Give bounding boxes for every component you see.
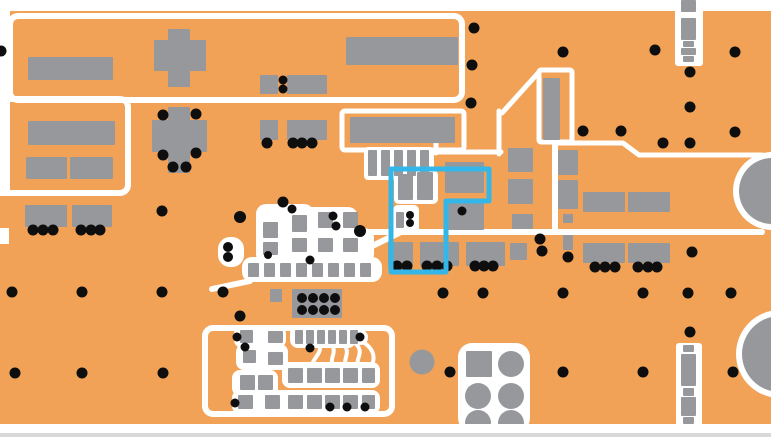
smd-pad xyxy=(447,203,484,230)
via xyxy=(354,225,366,237)
smd-pad xyxy=(683,417,694,424)
via xyxy=(488,261,499,272)
smd-pad xyxy=(240,330,253,343)
smd-pad xyxy=(628,243,670,263)
round-pad xyxy=(498,351,524,377)
via xyxy=(650,45,661,56)
pad-clearance xyxy=(218,237,244,267)
smd-pad xyxy=(466,351,492,377)
pcb-board-view xyxy=(0,0,771,437)
board-margin xyxy=(0,0,771,11)
via xyxy=(578,126,589,137)
smd-pad xyxy=(394,150,403,176)
via xyxy=(616,126,627,137)
via xyxy=(406,219,414,227)
via xyxy=(157,206,168,217)
via xyxy=(537,246,548,257)
via xyxy=(466,98,477,109)
smd-pad xyxy=(543,78,560,140)
via xyxy=(685,102,696,113)
via xyxy=(288,205,297,214)
smd-pad xyxy=(70,157,113,179)
via xyxy=(235,311,246,322)
smd-pad xyxy=(28,57,113,80)
via xyxy=(330,305,340,315)
via xyxy=(730,47,741,58)
via xyxy=(10,368,21,379)
smd-pad xyxy=(288,395,303,409)
via xyxy=(329,212,338,221)
smd-pad xyxy=(295,330,303,344)
smd-pad xyxy=(508,179,533,204)
via xyxy=(638,367,649,378)
via xyxy=(191,109,202,120)
smd-pad xyxy=(558,180,578,209)
via xyxy=(330,293,340,303)
via xyxy=(685,138,696,149)
via xyxy=(157,287,168,298)
smd-pad xyxy=(307,368,322,383)
via xyxy=(158,110,169,121)
via xyxy=(233,333,242,342)
smd-pad xyxy=(343,238,358,252)
via xyxy=(558,288,569,299)
via xyxy=(76,225,87,236)
smd-pad xyxy=(328,263,339,277)
via xyxy=(77,368,88,379)
via xyxy=(319,305,329,315)
smd-pad xyxy=(683,41,694,47)
pcb-canvas[interactable] xyxy=(0,0,771,437)
board-edge-line xyxy=(0,433,771,437)
via xyxy=(234,211,246,223)
via xyxy=(361,403,370,412)
via xyxy=(279,76,288,85)
via xyxy=(262,138,273,149)
via xyxy=(38,225,49,236)
smd-pad xyxy=(258,375,273,390)
smd-pad xyxy=(287,120,327,140)
smd-pad xyxy=(307,395,322,409)
via xyxy=(445,367,456,378)
via xyxy=(278,197,289,208)
smd-pad xyxy=(248,263,259,277)
smd-pad xyxy=(583,243,625,263)
smd-pad xyxy=(270,289,282,302)
smd-pad xyxy=(28,121,115,145)
via xyxy=(406,211,414,219)
smd-pad xyxy=(360,263,371,277)
smd-pad xyxy=(398,174,413,200)
smd-pad xyxy=(512,214,533,229)
smd-pad xyxy=(583,192,625,212)
via xyxy=(343,403,352,412)
via xyxy=(168,162,179,173)
via xyxy=(658,138,669,149)
smd-pad xyxy=(296,263,307,277)
smd-pad xyxy=(362,368,375,383)
via xyxy=(223,252,233,262)
smd-pad xyxy=(683,345,694,352)
smd-pad xyxy=(563,235,573,250)
via xyxy=(308,293,318,303)
smd-pad xyxy=(681,354,696,386)
via xyxy=(306,256,315,265)
via xyxy=(332,222,341,231)
via xyxy=(297,305,307,315)
smd-pad xyxy=(72,205,112,227)
smd-pad xyxy=(292,215,307,232)
copper-pour xyxy=(0,0,771,437)
via xyxy=(279,85,288,94)
smd-pad xyxy=(558,150,578,175)
via xyxy=(558,47,569,58)
smd-pad xyxy=(318,238,333,252)
smd-pad xyxy=(317,330,325,344)
via xyxy=(158,150,169,161)
smd-pad xyxy=(263,222,278,238)
smd-pad xyxy=(396,212,404,228)
via xyxy=(469,23,480,34)
via xyxy=(48,225,59,236)
smd-pad xyxy=(681,48,696,55)
via xyxy=(683,288,694,299)
via xyxy=(458,207,467,216)
smd-pad xyxy=(268,352,283,365)
via xyxy=(535,234,546,245)
smd-pad xyxy=(168,29,190,87)
smd-pad xyxy=(510,243,527,260)
smd-pad xyxy=(681,18,696,40)
via xyxy=(264,251,272,259)
via xyxy=(478,288,489,299)
smd-pad xyxy=(292,238,307,252)
via xyxy=(638,288,649,299)
via xyxy=(7,287,18,298)
smd-pad xyxy=(264,263,275,277)
via xyxy=(28,225,39,236)
smd-pad xyxy=(260,120,278,140)
via xyxy=(438,288,449,299)
via xyxy=(356,333,365,342)
via xyxy=(685,327,696,338)
smd-pad xyxy=(240,375,255,390)
smd-pad xyxy=(265,395,280,409)
smd-pad xyxy=(339,330,347,344)
smd-pad xyxy=(287,75,327,94)
smd-pad xyxy=(238,395,253,409)
via xyxy=(218,287,229,298)
round-pad xyxy=(410,350,435,375)
via xyxy=(685,67,696,78)
smd-pad xyxy=(312,263,323,277)
smd-pad xyxy=(288,368,303,383)
via xyxy=(95,225,106,236)
via xyxy=(308,305,318,315)
via xyxy=(297,293,307,303)
smd-pad xyxy=(628,192,670,212)
via xyxy=(181,162,192,173)
smd-pad xyxy=(343,212,358,228)
smd-pad xyxy=(681,0,696,12)
via xyxy=(158,368,169,379)
via xyxy=(726,288,737,299)
via xyxy=(730,127,741,138)
board-margin xyxy=(0,228,9,244)
via xyxy=(223,242,233,252)
via xyxy=(307,138,318,149)
smd-pad xyxy=(243,350,256,363)
smd-pad xyxy=(344,263,355,277)
via xyxy=(563,252,574,263)
via xyxy=(558,367,569,378)
via xyxy=(600,262,611,273)
via xyxy=(241,343,250,352)
smd-pad xyxy=(350,117,455,143)
via xyxy=(467,60,478,71)
via xyxy=(633,262,644,273)
smd-pad xyxy=(325,368,340,383)
smd-pad xyxy=(260,75,278,94)
via xyxy=(231,399,240,408)
via xyxy=(297,138,308,149)
via xyxy=(610,262,621,273)
via xyxy=(590,262,601,273)
smd-pad xyxy=(328,330,336,344)
smd-pad xyxy=(508,148,533,172)
smd-pad xyxy=(25,205,67,227)
via xyxy=(191,148,202,159)
via xyxy=(652,262,663,273)
smd-pad xyxy=(343,368,358,383)
smd-pad xyxy=(280,263,291,277)
smd-pad xyxy=(306,330,314,344)
via xyxy=(728,367,739,378)
smd-pad xyxy=(346,37,458,65)
smd-pad xyxy=(683,56,694,62)
via xyxy=(306,344,315,353)
via xyxy=(326,403,335,412)
via xyxy=(319,293,329,303)
round-pad xyxy=(465,383,491,409)
via xyxy=(687,247,698,258)
smd-pad xyxy=(683,388,694,396)
smd-pad xyxy=(681,397,696,416)
smd-pad xyxy=(407,150,416,176)
via xyxy=(77,287,88,298)
smd-pad xyxy=(563,214,573,223)
smd-pad xyxy=(417,172,433,200)
smd-pad xyxy=(26,157,67,179)
round-pad xyxy=(498,383,524,409)
smd-pad xyxy=(368,150,377,176)
smd-pad xyxy=(268,331,283,343)
